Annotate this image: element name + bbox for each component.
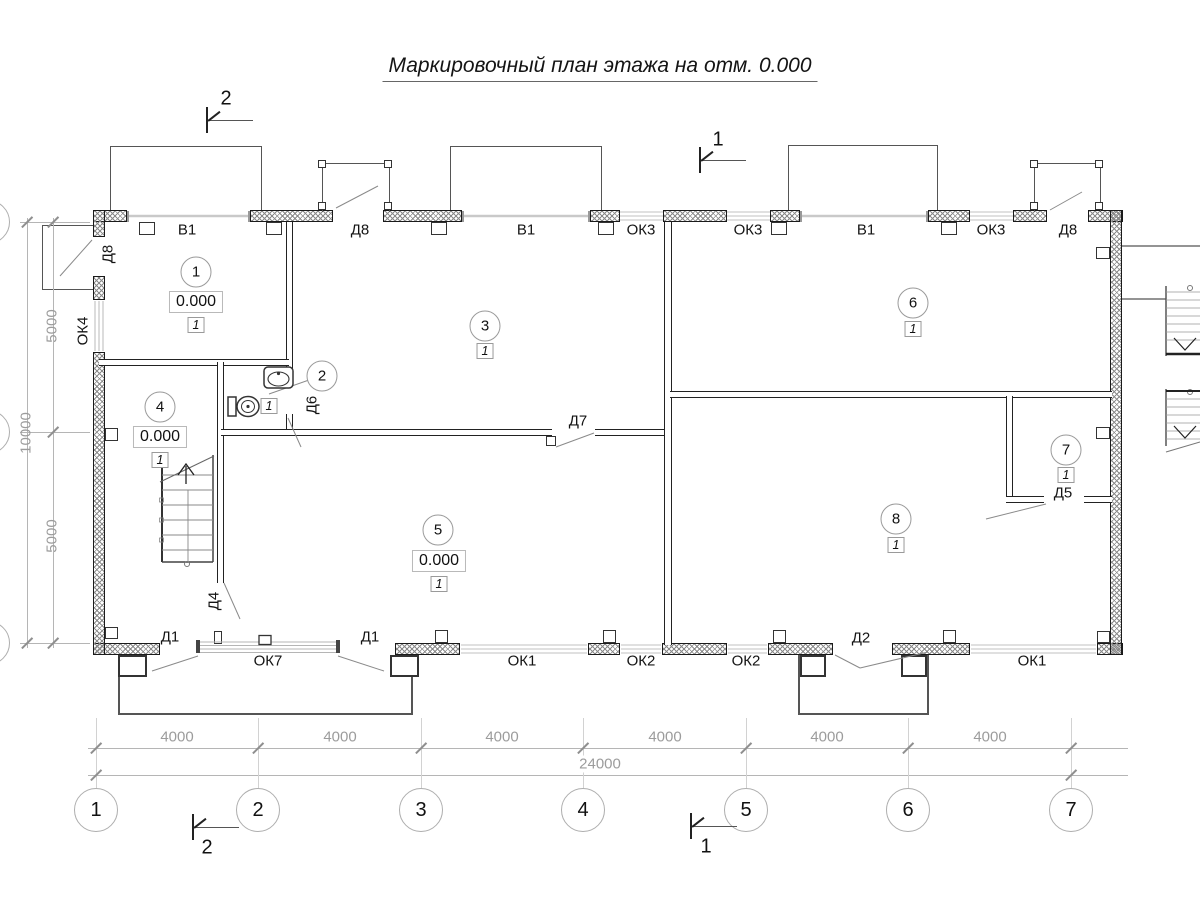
interior-wall: [1006, 496, 1044, 503]
pilaster: [1097, 631, 1110, 643]
porch-column: [800, 655, 826, 677]
wall-pier: [395, 643, 460, 655]
section-mark-number: 2: [220, 88, 231, 111]
wall-label-д1: Д1: [161, 629, 180, 646]
wall-label-в1: В1: [178, 222, 196, 239]
wall-pier: [590, 210, 620, 222]
porch-outline: [1034, 163, 1101, 212]
pilaster: [435, 630, 448, 643]
page-title: Маркировочный план этажа на отм. 0.000: [383, 54, 818, 82]
wall-label-д2: Д2: [852, 630, 871, 647]
wall-pier: [663, 210, 727, 222]
axis-extension-line: [421, 718, 422, 788]
dim-line-total: [88, 775, 1128, 776]
dim-text-bay: 4000: [320, 729, 359, 746]
wall-label-ок3: ОК3: [627, 222, 656, 239]
axis-extension-line: [746, 718, 747, 788]
room-number-circle: 7: [1051, 435, 1082, 466]
porch-edge: [798, 713, 928, 715]
dim-text-left: 5000: [44, 306, 61, 345]
dim-ext-line: [20, 222, 90, 223]
axis-circle-7: 7: [1049, 788, 1093, 832]
dim-text-bay: 4000: [482, 729, 521, 746]
pilaster: [598, 222, 614, 235]
section-mark-number: 2: [201, 837, 212, 860]
wall-pier: [250, 210, 333, 222]
room-unit-box: 1: [1058, 467, 1075, 483]
wall-pier: [588, 643, 620, 655]
porch-outline: [322, 163, 390, 212]
dim-text-left: 5000: [44, 516, 61, 555]
dim-text-bay: 4000: [807, 729, 846, 746]
wall-label-д1: Д1: [361, 629, 380, 646]
wall-label-ок3: ОК3: [977, 222, 1006, 239]
porch-post: [318, 160, 326, 168]
section-mark-number: 1: [700, 836, 711, 859]
wall-label-в1: В1: [517, 222, 535, 239]
porch-post: [1030, 202, 1038, 210]
interior-wall: [1006, 396, 1013, 502]
section-mark-number: 1: [712, 129, 723, 152]
room-unit-box: 1: [152, 452, 169, 468]
interior-wall: [217, 362, 224, 583]
axis-extension-line: [258, 718, 259, 788]
porch-post: [384, 160, 392, 168]
wall-label-ок2: ОК2: [627, 653, 656, 670]
pilaster: [1096, 247, 1110, 259]
porch-column: [390, 655, 419, 677]
room-number-circle: 4: [145, 392, 176, 423]
porch-column: [901, 655, 927, 677]
axis-extension-line: [908, 718, 909, 788]
wall-label-д8: Д8: [100, 245, 117, 264]
porch-outline: [42, 225, 93, 290]
pilaster: [941, 222, 957, 235]
pilaster: [139, 222, 155, 235]
room-number-circle: 3: [470, 311, 501, 342]
wall-label-ок2: ОК2: [732, 653, 761, 670]
interior-wall: [221, 429, 552, 436]
dim-text-bay: 4000: [970, 729, 1009, 746]
pilaster: [771, 222, 787, 235]
wall-label-д8: Д8: [351, 222, 370, 239]
room-elevation-mark: 0.000: [133, 426, 187, 448]
pilaster: [1096, 427, 1110, 439]
room-number-circle: 2: [307, 361, 338, 392]
wall-label-ок7: ОК7: [254, 653, 283, 670]
wall-pier: [93, 210, 105, 237]
porch-outline: [788, 145, 938, 210]
room-unit-box: 1: [188, 317, 205, 333]
room-unit-box: 1: [888, 537, 905, 553]
room-number-circle: 8: [881, 504, 912, 535]
room-unit-box: 1: [261, 398, 278, 414]
porch-post: [1095, 202, 1103, 210]
room-unit-box: 1: [905, 321, 922, 337]
wall-label-в1: В1: [857, 222, 875, 239]
wall-pier: [928, 210, 970, 222]
porch-outline: [110, 146, 262, 210]
porch-edge: [927, 655, 929, 715]
wall-pier: [770, 210, 800, 222]
axis-extension-line: [583, 718, 584, 788]
axis-circle-3: 3: [399, 788, 443, 832]
wall-label-д7: Д7: [569, 413, 588, 430]
section-mark-line: [692, 826, 737, 827]
dim-ext-line: [20, 643, 90, 644]
porch-edge: [118, 713, 413, 715]
dim-text-bay: 4000: [157, 729, 196, 746]
wall-label-д4: Д4: [206, 592, 223, 611]
porch-post: [1030, 160, 1038, 168]
pilaster: [105, 627, 118, 639]
axis-circle-1: 1: [74, 788, 118, 832]
wall-pier: [892, 643, 970, 655]
pilaster: [603, 630, 616, 643]
wall-pier: [1110, 210, 1122, 655]
wall-label-д8: Д8: [1059, 222, 1078, 239]
door-jamb-post: [214, 631, 222, 644]
dim-line-left-inner: [53, 218, 54, 648]
interior-wall: [670, 391, 1112, 398]
interior-wall: [595, 429, 670, 436]
floor-plan-canvas: Маркировочный план этажа на отм. 0.000: [0, 0, 1200, 900]
room-number-circle: 6: [898, 288, 929, 319]
wall-pier: [768, 643, 833, 655]
room-number-circle: 1: [181, 257, 212, 288]
dim-text-total: 24000: [576, 756, 624, 773]
wall-label-ок1: ОК1: [1018, 653, 1047, 670]
axis-extension-line: [1071, 718, 1072, 788]
wall-label-ок1: ОК1: [508, 653, 537, 670]
interior-wall: [99, 359, 289, 366]
wall-label-ок4: ОК4: [75, 317, 92, 346]
axis-circle-4: 4: [561, 788, 605, 832]
wall-pier: [93, 276, 105, 300]
wall-label-ок3: ОК3: [734, 222, 763, 239]
dim-line-bays: [88, 748, 1128, 749]
axis-circle-left: [0, 410, 10, 454]
section-mark-line: [194, 827, 239, 828]
room-elevation-mark: 0.000: [412, 550, 466, 572]
exterior-stairs: [1122, 246, 1200, 452]
pilaster: [773, 630, 786, 643]
axis-circle-left: [0, 200, 10, 244]
porch-column: [118, 655, 147, 677]
interior-wall: [1084, 496, 1112, 503]
dim-text-left: 10000: [18, 409, 35, 457]
dim-text-bay: 4000: [645, 729, 684, 746]
pilaster: [943, 630, 956, 643]
room-number-circle: 5: [423, 515, 454, 546]
pilaster: [431, 222, 447, 235]
axis-circle-2: 2: [236, 788, 280, 832]
room-unit-box: 1: [431, 576, 448, 592]
wall-label-д6: Д6: [304, 396, 321, 415]
porch-post: [384, 202, 392, 210]
pilaster: [546, 436, 556, 446]
porch-post: [1095, 160, 1103, 168]
interior-stairs: [160, 455, 215, 567]
room-unit-box: 1: [477, 343, 494, 359]
interior-wall: [664, 222, 672, 645]
porch-post: [318, 202, 326, 210]
room-elevation-mark: 0.000: [169, 291, 223, 313]
axis-circle-6: 6: [886, 788, 930, 832]
wall-pier: [93, 352, 105, 655]
porch-outline: [450, 146, 602, 210]
wall-pier: [383, 210, 462, 222]
pilaster: [266, 222, 282, 235]
section-mark-line: [208, 120, 253, 121]
pilaster: [105, 428, 118, 441]
axis-circle-left: [0, 621, 10, 665]
wall-label-д5: Д5: [1054, 485, 1073, 502]
section-mark-line: [701, 160, 746, 161]
axis-extension-line: [96, 718, 97, 788]
